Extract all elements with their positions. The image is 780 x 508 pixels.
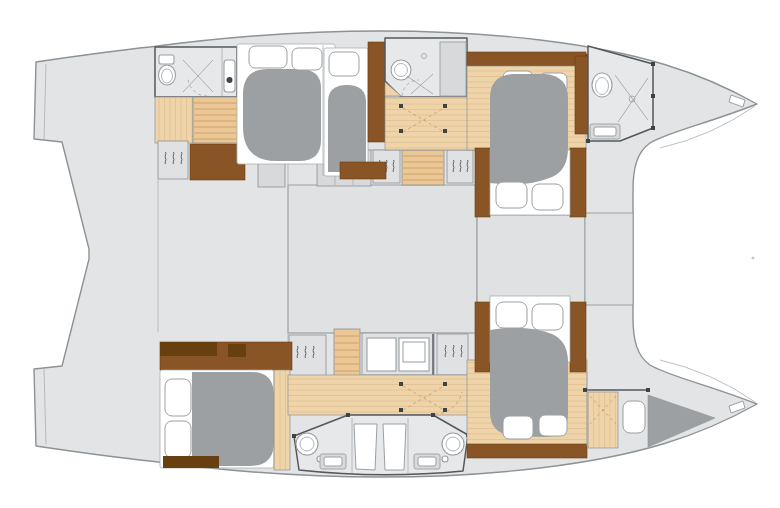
- bed-frame-left: [475, 148, 490, 217]
- pillow: [532, 184, 563, 210]
- duvet: [328, 85, 366, 172]
- bow-bathroom: [575, 46, 655, 143]
- duvet: [490, 74, 568, 185]
- crew-floor: [588, 392, 618, 448]
- pillow: [496, 302, 527, 328]
- lower-forward-cabin: [467, 296, 587, 458]
- pillow: [165, 421, 191, 458]
- footboard-band: [467, 444, 587, 458]
- faucet: [227, 77, 233, 83]
- pillow: [496, 182, 527, 208]
- deck-hatch: [503, 416, 533, 439]
- mid-bathroom: [385, 38, 467, 97]
- forward-deck-strip: [585, 213, 633, 305]
- entry-steps-upper: [402, 150, 444, 185]
- forward-saloon: [477, 215, 585, 305]
- forestay-bridle-point: [752, 257, 755, 260]
- single-berth: [324, 48, 368, 176]
- bulkhead-locker: [575, 56, 588, 134]
- bed-frame-right: [570, 302, 586, 372]
- bedside-floor: [274, 370, 290, 470]
- sink-basin: [403, 342, 425, 362]
- hull-window: [329, 52, 359, 76]
- floorplan-page: [0, 0, 780, 508]
- deck-hatch: [539, 415, 567, 436]
- pillow: [165, 379, 191, 416]
- aft-bathroom: [155, 47, 237, 97]
- bed-frame-right: [570, 148, 586, 217]
- pillow: [623, 401, 645, 433]
- wardrobe-lower-left: [289, 335, 326, 376]
- berth-foot-locker: [340, 162, 386, 179]
- entry-steps-lower: [334, 329, 360, 377]
- aft-double-bed: [160, 370, 274, 468]
- aft-wardrobe: [158, 141, 188, 179]
- berth-side-locker: [368, 42, 385, 142]
- foot-locker: [163, 456, 219, 468]
- vanity-sink: [224, 60, 235, 92]
- duvet: [192, 372, 274, 466]
- bed-frame-left: [475, 302, 490, 372]
- aft-cabin-floor-steps: [155, 97, 247, 143]
- toilet: [296, 433, 318, 455]
- shower-stall: [354, 424, 377, 470]
- wardrobe-lower-right: [437, 334, 468, 375]
- duvet: [243, 69, 321, 161]
- toilet: [592, 73, 612, 97]
- shower-panel: [440, 42, 466, 96]
- aft-double-bed: [237, 44, 335, 164]
- wardrobe-upper-right: [447, 150, 473, 183]
- lower-corridor: [288, 375, 480, 415]
- headboard-band: [467, 52, 586, 66]
- toilet-cistern: [159, 55, 174, 64]
- toilet: [159, 65, 176, 85]
- faucet: [442, 456, 448, 462]
- saloon-floor: [288, 185, 477, 333]
- aft-storage-band: [160, 342, 292, 370]
- toilet: [442, 433, 464, 455]
- pillow: [532, 304, 563, 330]
- hull-window: [249, 46, 287, 68]
- counter-with-sink: [362, 333, 434, 375]
- catamaran-floorplan: [0, 0, 780, 508]
- hull-window: [292, 48, 322, 70]
- shower-stall: [383, 424, 406, 470]
